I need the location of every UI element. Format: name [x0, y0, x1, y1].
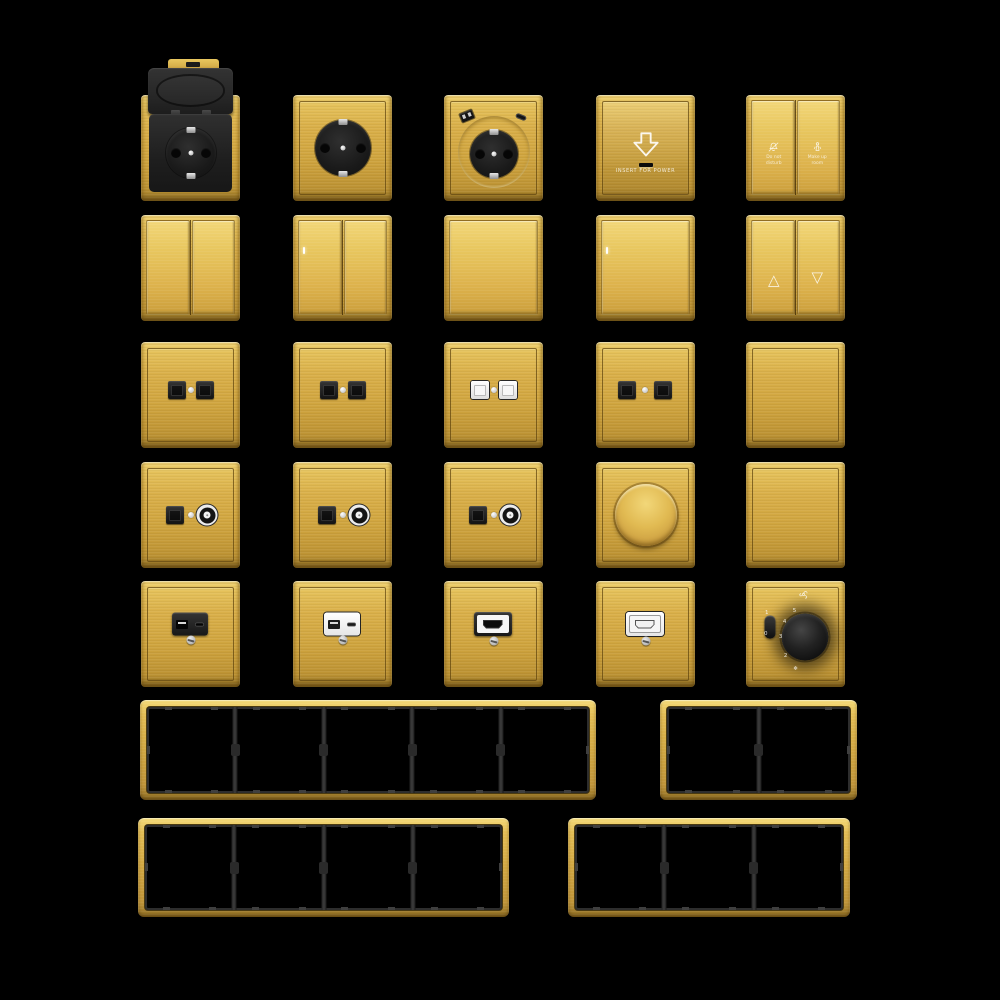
mount-tab — [685, 707, 692, 710]
jack-opening — [323, 385, 335, 396]
device-switch-1gang-indicator — [596, 215, 695, 321]
mount-tab — [252, 907, 259, 910]
mount-tab — [685, 790, 692, 793]
plate-inner-line — [147, 348, 234, 442]
mount-tab — [847, 746, 850, 754]
mount-tab — [165, 707, 172, 710]
socket-hole-left — [320, 143, 330, 153]
schuko-socket — [470, 130, 518, 178]
mount-tab — [341, 790, 348, 793]
mount-tab — [431, 825, 438, 828]
rocker-right — [192, 220, 236, 315]
plate-inner-line — [752, 468, 839, 562]
jack-opening — [474, 385, 486, 396]
frame-divider — [321, 825, 326, 910]
earth-clip-top — [338, 119, 347, 125]
coax-connector — [349, 505, 370, 526]
mount-tab — [818, 907, 825, 910]
mount-tab — [593, 825, 600, 828]
frame-opening — [759, 707, 851, 793]
do-not-disturb-icon — [767, 141, 781, 153]
mount-tab — [430, 707, 437, 710]
mount-tab — [840, 863, 843, 871]
screw-slot — [490, 640, 497, 643]
hdmi-opening — [484, 621, 502, 628]
device-switch-1gang — [444, 215, 543, 321]
device-switch-2gang-indicator — [293, 215, 392, 321]
hdmi-port — [635, 620, 655, 629]
mount-tab — [818, 825, 825, 828]
mount-tab — [593, 907, 600, 910]
device-hdmi-socket-black — [444, 581, 543, 687]
device-tv-data-socket-c — [444, 462, 543, 568]
device-socket-schuko — [293, 95, 392, 201]
mount-tab — [477, 825, 484, 828]
hdmi-opening — [636, 621, 654, 628]
mount-tab — [825, 790, 832, 793]
usb-module — [172, 613, 208, 636]
flip-cover — [148, 68, 233, 114]
data-jack — [348, 381, 366, 399]
rocker-left — [751, 220, 795, 315]
plate-inner-line — [602, 348, 689, 442]
frame-openings — [145, 825, 502, 910]
frame-opening — [147, 707, 235, 793]
frame-divider — [233, 707, 238, 793]
data-jack — [168, 381, 186, 399]
device-data-socket-double-spaced — [596, 342, 695, 448]
earth-clip-bottom — [489, 173, 498, 179]
mount-tab — [299, 790, 306, 793]
usb-a-port — [176, 620, 188, 629]
device-data-socket-double-black-a — [141, 342, 240, 448]
earth-clip-top — [489, 129, 498, 135]
device-hotel-service-switch: Do not disturbMake up room — [746, 95, 845, 201]
mount-tab — [518, 790, 525, 793]
coax-pin — [358, 514, 361, 517]
rocker — [449, 220, 538, 315]
frame-opening — [501, 707, 589, 793]
frame-opening — [145, 825, 234, 910]
frame-divider — [662, 825, 667, 910]
jack-opening — [621, 385, 633, 396]
screw-slot — [187, 639, 194, 642]
coax-pin — [206, 514, 209, 517]
frame-opening — [412, 707, 500, 793]
hdmi-module — [474, 612, 512, 636]
indicator-led — [606, 247, 608, 254]
device-usb-charger-white — [293, 581, 392, 687]
mount-tab — [729, 825, 736, 828]
mount-tab — [477, 907, 484, 910]
frame-opening — [664, 825, 753, 910]
device-hdmi-socket-white — [596, 581, 695, 687]
mount-tab — [341, 707, 348, 710]
rocker-seam — [795, 100, 796, 195]
mount-tab — [733, 707, 740, 710]
earth-clip-bottom — [186, 173, 195, 179]
mount-tab — [772, 825, 779, 828]
indicator-dot — [642, 387, 648, 393]
frame-openings — [667, 707, 850, 793]
frame-4-gang — [138, 818, 509, 917]
data-jack — [618, 381, 636, 399]
device-data-socket-double-black-b — [293, 342, 392, 448]
frame-2-gang — [660, 700, 857, 800]
mount-tab — [777, 790, 784, 793]
frame-opening — [667, 707, 759, 793]
data-jack — [654, 381, 672, 399]
screw-slot — [339, 639, 346, 642]
data-jack — [471, 381, 489, 399]
data-jack — [318, 506, 336, 524]
mount-tab — [299, 707, 306, 710]
mount-tab — [518, 707, 525, 710]
device-rotary-dimmer — [596, 462, 695, 568]
cover-recess — [156, 74, 224, 106]
mount-tab — [163, 825, 170, 828]
center-pin — [491, 152, 496, 157]
device-tv-data-socket-a — [141, 462, 240, 568]
mount-tab — [253, 790, 260, 793]
indicator-dot — [340, 512, 346, 518]
data-jack — [320, 381, 338, 399]
mount-tab — [682, 825, 689, 828]
frame-opening — [754, 825, 843, 910]
frame-divider — [756, 707, 761, 793]
frame-opening — [234, 825, 323, 910]
card-slot — [639, 163, 653, 167]
mounting-screw — [338, 636, 347, 645]
jack-opening — [472, 510, 484, 521]
fan-icon — [797, 588, 810, 601]
device-switch-2gang — [141, 215, 240, 321]
device-socket-flip-cover — [141, 95, 240, 201]
mounting-screw — [489, 637, 498, 646]
jack-opening — [657, 385, 669, 396]
data-jack — [166, 506, 184, 524]
frame-openings — [575, 825, 843, 910]
mount-tab — [211, 707, 218, 710]
mount-tab — [772, 907, 779, 910]
mounting-screw — [641, 637, 650, 646]
indicator-dot — [491, 387, 497, 393]
mount-tab — [252, 825, 259, 828]
make-up-room-icon — [810, 141, 824, 153]
frame-opening — [575, 825, 664, 910]
frame-divider — [321, 707, 326, 793]
mount-tab — [575, 863, 578, 871]
mount-tab — [733, 790, 740, 793]
frame-opening — [324, 707, 412, 793]
mount-tab — [145, 863, 148, 871]
mount-tab — [639, 907, 646, 910]
snowflake-icon: ❄ — [791, 665, 801, 673]
mount-tab — [499, 863, 502, 871]
frame-3-gang — [568, 818, 850, 917]
usb-module — [324, 613, 360, 636]
up-triangle-icon: △ — [765, 272, 783, 290]
mount-tab — [341, 907, 348, 910]
mount-tab — [253, 707, 260, 710]
scale-4: 4 — [780, 618, 790, 626]
frame-opening — [413, 825, 502, 910]
mount-tab — [388, 707, 395, 710]
down-triangle-icon: ▽ — [808, 269, 826, 287]
rocker-right — [797, 220, 841, 315]
device-usb-charger-black — [141, 581, 240, 687]
mount-tab — [341, 825, 348, 828]
plate-inner-line — [299, 348, 386, 442]
data-jack — [499, 381, 517, 399]
device-blank-plate-b — [746, 462, 845, 568]
mount-tab — [388, 790, 395, 793]
plate-inner-line — [450, 348, 537, 442]
jack-opening — [171, 385, 183, 396]
mounting-screw — [186, 636, 195, 645]
schuko-socket — [315, 120, 371, 176]
mount-tab — [586, 746, 589, 754]
rocker-right — [344, 220, 388, 315]
gold-switch-socket-collection: INSERT FOR POWERDo not disturbMake up ro… — [0, 0, 1000, 1000]
jack-opening — [351, 385, 363, 396]
rocker-left — [146, 220, 190, 315]
mount-tab — [564, 790, 571, 793]
mount-tab — [777, 707, 784, 710]
mount-tab — [430, 790, 437, 793]
jack-opening — [169, 510, 181, 521]
frame-divider — [232, 825, 237, 910]
jack-opening — [502, 385, 514, 396]
device-tv-data-socket-b — [293, 462, 392, 568]
slider-off-label: 0 — [761, 630, 771, 638]
dimmer-knob — [615, 484, 677, 546]
device-socket-schuko-usb — [444, 95, 543, 201]
mount-tab — [388, 825, 395, 828]
device-data-socket-double-white — [444, 342, 543, 448]
mount-tab — [729, 907, 736, 910]
socket-hole-right — [201, 148, 211, 158]
jack-opening — [321, 510, 333, 521]
rocker-seam — [795, 220, 796, 315]
indicator-dot — [188, 387, 194, 393]
mount-tab — [388, 907, 395, 910]
socket-hole-left — [171, 148, 181, 158]
mount-tab — [299, 907, 306, 910]
socket-hole-left — [475, 149, 485, 159]
device-curtain-switch: △▽ — [746, 215, 845, 321]
mount-tab — [299, 825, 306, 828]
indicator-dot — [340, 387, 346, 393]
device-blank-plate-a — [746, 342, 845, 448]
mount-tab — [431, 907, 438, 910]
mount-tab — [667, 746, 670, 754]
data-jack — [196, 381, 214, 399]
mount-tab — [639, 825, 646, 828]
plate-inner-line — [752, 348, 839, 442]
mount-tab — [165, 790, 172, 793]
socket-hole-right — [503, 149, 513, 159]
center-pin — [188, 151, 193, 156]
indicator-dot — [188, 512, 194, 518]
rocker-seam — [190, 220, 191, 315]
module-face — [629, 615, 661, 633]
usb-c-port — [347, 622, 356, 626]
jack-opening — [199, 385, 211, 396]
mount-tab — [476, 707, 483, 710]
device-fan-speed-controller: 105432❄ — [746, 581, 845, 687]
mount-tab — [564, 707, 571, 710]
mount-tab — [147, 746, 150, 754]
frame-5-gang — [140, 700, 596, 800]
hdmi-module — [626, 612, 664, 636]
keycard-label: INSERT FOR POWER — [596, 168, 695, 174]
mount-tab — [682, 907, 689, 910]
coax-connector — [197, 505, 218, 526]
rocker-seam — [342, 220, 343, 315]
mount-tab — [211, 790, 218, 793]
center-pin — [340, 146, 345, 151]
screw-slot — [642, 640, 649, 643]
mount-tab — [825, 707, 832, 710]
make-up-room-label: Make up room — [796, 155, 840, 166]
frame-opening — [324, 825, 413, 910]
coax-pin — [509, 514, 512, 517]
scale-3: 3 — [776, 633, 786, 641]
schuko-socket — [166, 128, 216, 178]
frame-openings — [147, 707, 589, 793]
mount-tab — [163, 907, 170, 910]
frame-divider — [410, 825, 415, 910]
rocker — [601, 220, 690, 315]
slider-on-label: 1 — [762, 609, 772, 617]
data-jack — [469, 506, 487, 524]
device-keycard-power-holder: INSERT FOR POWER — [596, 95, 695, 201]
usb-a-port — [328, 620, 340, 629]
mount-tab — [476, 790, 483, 793]
frame-opening — [235, 707, 323, 793]
frame-divider — [751, 825, 756, 910]
mount-tab — [209, 907, 216, 910]
indicator-dot — [491, 512, 497, 518]
usb-c-port — [195, 622, 204, 626]
insert-arrow-icon — [628, 130, 664, 160]
earth-clip-top — [186, 127, 195, 133]
do-not-disturb-label: Do not disturb — [752, 155, 796, 166]
socket-hole-right — [356, 143, 366, 153]
hdmi-port — [483, 620, 503, 629]
rocker-left — [298, 220, 342, 315]
earth-clip-bottom — [338, 171, 347, 177]
module-face — [477, 615, 509, 633]
hinge-notch — [186, 62, 200, 67]
mount-tab — [209, 825, 216, 828]
indicator-led — [303, 247, 305, 254]
scale-5: 5 — [790, 607, 800, 615]
coax-connector — [500, 505, 521, 526]
frame-divider — [410, 707, 415, 793]
frame-divider — [498, 707, 503, 793]
scale-2: 2 — [781, 652, 791, 660]
